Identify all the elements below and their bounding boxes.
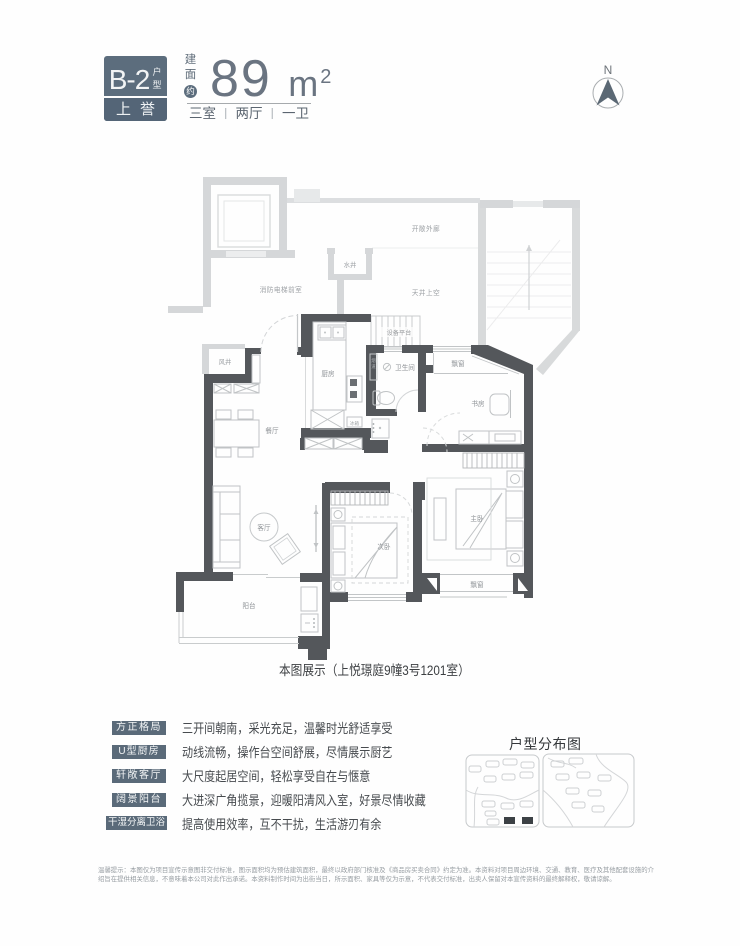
svg-text:烟: 烟 [371, 357, 376, 364]
svg-text:书房: 书房 [471, 399, 485, 408]
svg-text:设备平台: 设备平台 [387, 329, 412, 337]
svg-text:天井上空: 天井上空 [412, 288, 440, 297]
svg-text:飘窗: 飘窗 [451, 359, 465, 368]
svg-text:次卧: 次卧 [377, 542, 391, 551]
svg-text:道: 道 [371, 363, 376, 370]
svg-text:餐厅: 餐厅 [265, 426, 279, 435]
svg-text:水井: 水井 [344, 260, 357, 269]
svg-text:客厅: 客厅 [257, 523, 271, 532]
svg-text:风井: 风井 [219, 357, 232, 366]
svg-text:飘窗: 飘窗 [470, 580, 484, 589]
svg-text:N: N [604, 63, 613, 77]
svg-text:消防电梯前室: 消防电梯前室 [260, 285, 303, 294]
svg-text:卫生间: 卫生间 [395, 363, 415, 372]
svg-text:冰箱: 冰箱 [350, 420, 360, 427]
svg-text:主卧: 主卧 [470, 514, 484, 523]
svg-text:阳台: 阳台 [242, 601, 256, 610]
svg-text:开敞外廊: 开敞外廊 [412, 224, 440, 233]
svg-text:厨房: 厨房 [321, 369, 335, 378]
